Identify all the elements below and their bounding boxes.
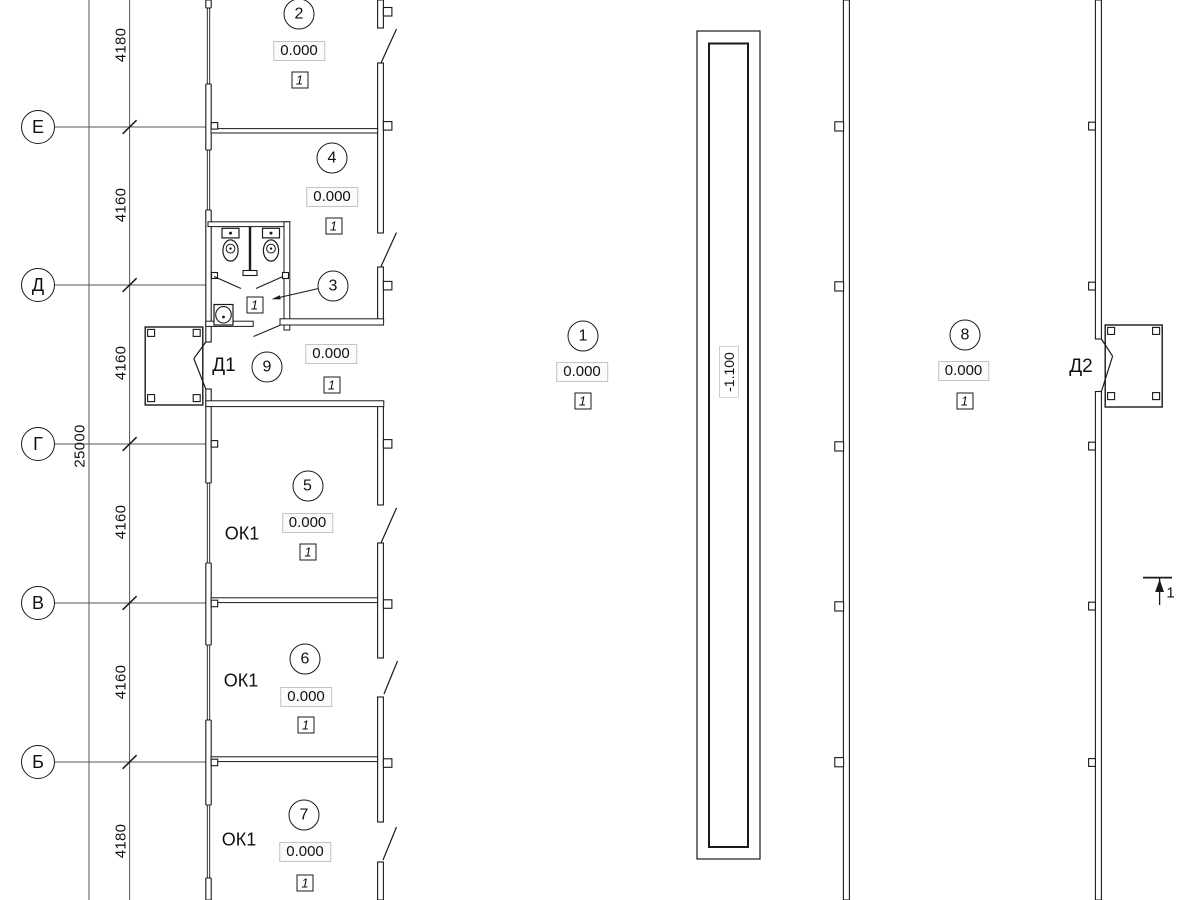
- porch-d2: [1105, 325, 1162, 407]
- finish-mark-room-1: 1: [574, 392, 591, 409]
- door-label-d1: Д1: [212, 355, 235, 377]
- elevation-mark-room-4: 0.000: [306, 187, 358, 207]
- dimension-label-6: 4180: [112, 823, 129, 858]
- total-dimension-label: 25000: [72, 424, 89, 467]
- window-label-ok1-room7: ОК1: [222, 829, 257, 850]
- pit-outline: [697, 31, 760, 859]
- dimension-label-1: 4180: [112, 27, 129, 62]
- room-number-3: 3: [318, 271, 349, 302]
- room-number-6: 6: [290, 644, 321, 675]
- axis-bubble-g: Г: [21, 427, 55, 461]
- left-exterior-wall: [206, 0, 211, 900]
- axis-bubble-v: В: [21, 586, 55, 620]
- dimension-label-4: 4160: [112, 505, 129, 540]
- finish-mark-room-6: 1: [297, 716, 314, 733]
- elevation-mark-room-8: 0.000: [938, 361, 990, 381]
- axis-bubble-e: Е: [21, 110, 55, 144]
- door-d1-leaves: [194, 342, 206, 389]
- finish-mark-room-8: 1: [956, 392, 973, 409]
- right-exterior-wall: [1089, 0, 1102, 900]
- finish-mark-room-3: 1: [246, 297, 263, 314]
- plan-linework: [0, 0, 1200, 900]
- room-number-1: 1: [568, 321, 599, 352]
- dimension-label-5: 4160: [112, 664, 129, 699]
- finish-mark-room-2: 1: [291, 71, 308, 88]
- dimension-label-3: 4160: [112, 345, 129, 380]
- room-number-4: 4: [317, 143, 348, 174]
- elevation-mark-room-7: 0.000: [279, 842, 331, 862]
- finish-mark-room-4: 1: [325, 217, 342, 234]
- elevation-mark-room-9: 0.000: [305, 344, 357, 364]
- finish-mark-room-5: 1: [300, 543, 317, 560]
- porch-d1: [145, 327, 203, 405]
- finish-mark-room-7: 1: [297, 874, 314, 891]
- middle-wall: [835, 0, 850, 900]
- elevation-mark-room-1: 0.000: [556, 362, 608, 382]
- window-label-ok1-room5: ОК1: [225, 524, 260, 545]
- building-right-wall: [378, 0, 384, 900]
- section-mark-label: 1: [1166, 584, 1174, 601]
- room3-leader-line: [272, 289, 319, 300]
- room-number-2: 2: [284, 0, 315, 30]
- elevation-mark-room-2: 0.000: [273, 41, 325, 61]
- elevation-mark-room-5: 0.000: [282, 513, 334, 533]
- finish-mark-room-9: 1: [323, 376, 340, 393]
- axis-bubble-d: Д: [21, 268, 55, 302]
- room-number-9: 9: [252, 352, 283, 383]
- toilet-icon: [263, 228, 280, 261]
- pit-elevation-label: -1.100: [719, 346, 739, 398]
- room-number-5: 5: [292, 471, 323, 502]
- axis-bubble-b: Б: [21, 745, 55, 779]
- door-label-d2: Д2: [1069, 356, 1092, 378]
- toilet-icon: [222, 228, 239, 261]
- elevation-mark-room-6: 0.000: [280, 687, 332, 707]
- dimension-label-2: 4160: [112, 187, 129, 222]
- room-number-7: 7: [289, 800, 320, 831]
- sink-icon: [214, 305, 233, 326]
- floor-plan: Е Д Г В Б 4180 4160 4160 4160 4160 4180 …: [0, 0, 1200, 900]
- room-number-8: 8: [950, 320, 981, 351]
- window-label-ok1-room6: ОК1: [224, 670, 259, 691]
- door-d2-leaves: [1101, 339, 1112, 392]
